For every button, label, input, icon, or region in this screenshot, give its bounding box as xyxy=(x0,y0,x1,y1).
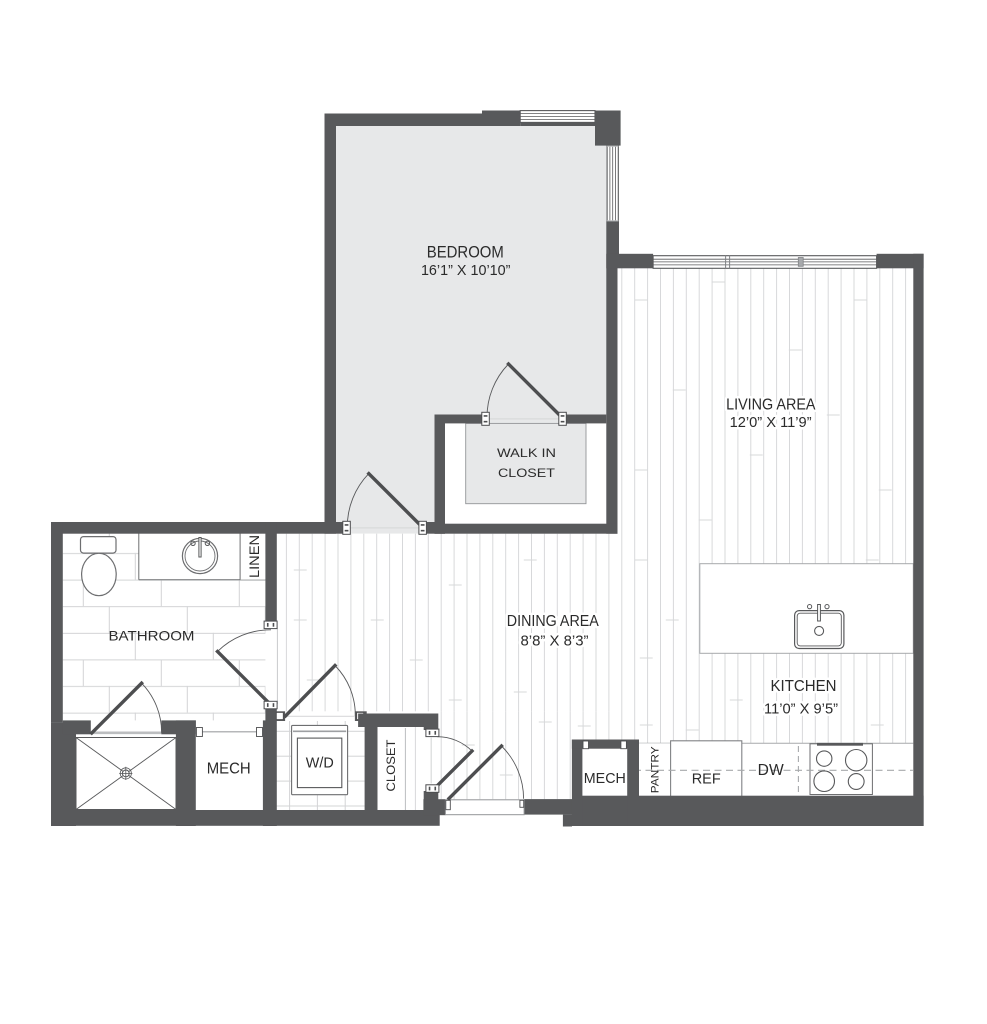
svg-text:MECH: MECH xyxy=(584,771,626,787)
svg-text:KITCHEN: KITCHEN xyxy=(771,678,837,695)
svg-text:DW: DW xyxy=(758,762,784,779)
svg-text:LIVING AREA: LIVING AREA xyxy=(726,397,816,414)
svg-text:LINEN: LINEN xyxy=(247,535,262,578)
svg-text:DINING AREA: DINING AREA xyxy=(507,613,600,630)
svg-text:BEDROOM: BEDROOM xyxy=(427,242,504,261)
svg-text:MECH: MECH xyxy=(207,761,251,778)
svg-text:WALK IN: WALK IN xyxy=(497,446,556,460)
svg-text:12’0” X 11’9”: 12’0” X 11’9” xyxy=(730,414,812,431)
svg-text:CLOSET: CLOSET xyxy=(384,739,398,792)
svg-text:BATHROOM: BATHROOM xyxy=(109,627,195,643)
svg-text:CLOSET: CLOSET xyxy=(498,466,556,480)
svg-text:8’8” X 8’3”: 8’8” X 8’3” xyxy=(521,632,589,649)
svg-text:W/D: W/D xyxy=(306,754,334,771)
svg-text:11’0” X 9’5”: 11’0” X 9’5” xyxy=(764,701,838,718)
svg-text:16’1” X 10’10”: 16’1” X 10’10” xyxy=(421,262,511,279)
svg-text:PANTRY: PANTRY xyxy=(650,746,662,793)
svg-text:REF: REF xyxy=(692,772,721,788)
